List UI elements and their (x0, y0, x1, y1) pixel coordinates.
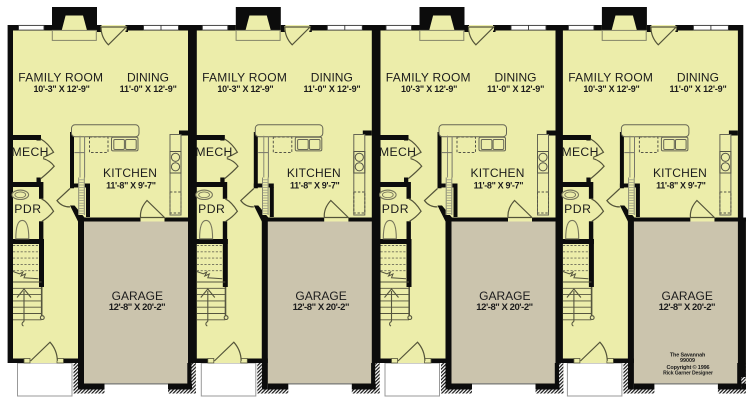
svg-text:99009: 99009 (680, 358, 695, 364)
svg-text:Rick Garner Designer: Rick Garner Designer (663, 371, 713, 377)
